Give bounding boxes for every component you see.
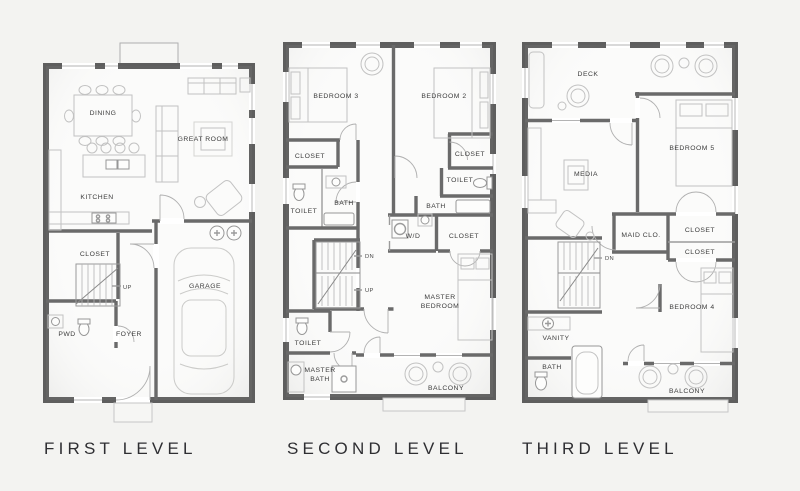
room-label-bedroom2: BEDROOM 2: [421, 93, 466, 100]
room-label-closet-lower: CLOSET: [685, 249, 715, 256]
room-label-bedroom4: BEDROOM 4: [669, 304, 714, 311]
room-label-master-bath-1: MASTER: [304, 367, 335, 374]
first-level-title: FIRST LEVEL: [44, 439, 197, 459]
room-label-garage: GARAGE: [189, 283, 221, 290]
room-label-vanity: VANITY: [542, 335, 569, 342]
stair-label-up: UP: [365, 288, 374, 294]
room-label-bedroom3: BEDROOM 3: [313, 93, 358, 100]
floor-plan-third-level: DECK MEDIA BEDROOM 5 MAID CLO. CLOSET CL…: [508, 36, 754, 428]
third-level-title: THIRD LEVEL: [522, 439, 678, 459]
room-label-closet: CLOSET: [80, 251, 110, 258]
room-label-bath-left: BATH: [334, 200, 354, 207]
room-label-closet-left: CLOSET: [295, 153, 325, 160]
room-label-closet-hall: CLOSET: [449, 233, 479, 240]
room-label-maid-closet: MAID CLO.: [621, 232, 660, 239]
room-label-foyer: FOYER: [116, 331, 142, 338]
balcony-step: [648, 400, 728, 412]
floor-plan-first-level: DINING GREAT ROOM KITCHEN CLOSET UP PWD …: [28, 36, 264, 428]
stair-label-dn: DN: [365, 254, 374, 260]
floor-plan-second-level: BEDROOM 3 BEDROOM 2 CLOSET CLOSET TOILET…: [268, 36, 508, 428]
room-label-great-room: GREAT ROOM: [178, 136, 229, 143]
room-label-media: MEDIA: [574, 171, 598, 178]
front-stoop: [114, 403, 152, 422]
room-label-toilet-upper-left: TOILET: [291, 208, 318, 215]
room-label-kitchen: KITCHEN: [80, 194, 113, 201]
stair-label-dn: DN: [605, 256, 614, 262]
room-label-deck: DECK: [578, 71, 599, 78]
second-level-title: SECOND LEVEL: [287, 439, 468, 459]
room-label-bath-right: BATH: [426, 203, 446, 210]
balcony-step: [383, 398, 465, 411]
stair-label-up: UP: [123, 285, 132, 291]
room-label-master-bedroom-2: BEDROOM: [421, 303, 460, 310]
room-label-balcony: BALCONY: [669, 388, 705, 395]
room-label-master-bath-2: BATH: [310, 376, 330, 383]
room-label-toilet-lower: TOILET: [295, 340, 322, 347]
room-label-bedroom5: BEDROOM 5: [669, 145, 714, 152]
room-label-dining: DINING: [90, 110, 117, 117]
room-label-bath: BATH: [542, 364, 562, 371]
room-label-pwd: PWD: [58, 331, 75, 338]
room-label-closet-right: CLOSET: [455, 151, 485, 158]
room-label-toilet-upper-right: TOILET: [447, 177, 474, 184]
room-label-master-bedroom-1: MASTER: [424, 294, 455, 301]
floor-plan-sheet: DINING GREAT ROOM KITCHEN CLOSET UP PWD …: [0, 0, 800, 491]
room-label-wd: W/D: [406, 233, 421, 240]
room-label-balcony: BALCONY: [428, 385, 464, 392]
room-label-closet-upper: CLOSET: [685, 227, 715, 234]
